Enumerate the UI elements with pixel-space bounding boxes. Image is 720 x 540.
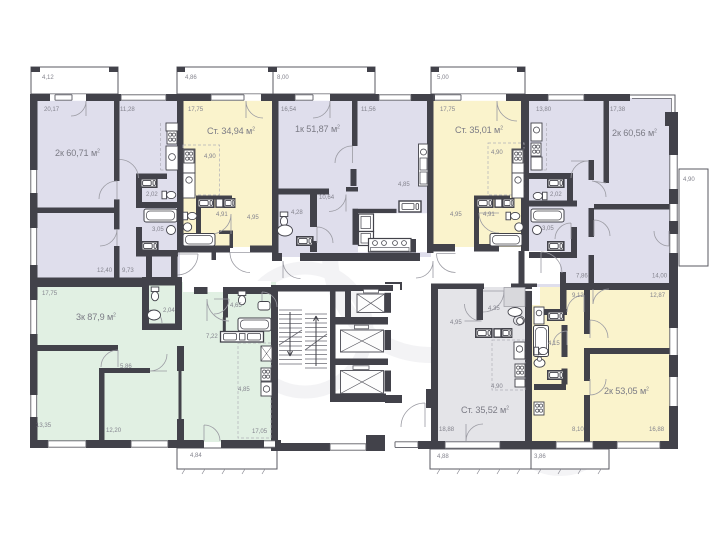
svg-text:Ст. 34,94 м2: Ст. 34,94 м2 [207,126,255,136]
svg-text:4,95: 4,95 [450,212,462,218]
svg-text:16,54: 16,54 [281,107,297,113]
svg-text:4,35: 4,35 [488,306,500,312]
svg-text:9,12: 9,12 [572,293,584,299]
svg-text:4,15: 4,15 [548,341,560,347]
svg-text:2к 53,05 м2: 2к 53,05 м2 [604,386,649,396]
svg-text:4,85: 4,85 [238,387,250,393]
svg-text:3,86: 3,86 [534,454,546,460]
svg-text:16,88: 16,88 [649,427,665,433]
svg-text:9,73: 9,73 [122,268,134,274]
svg-text:13,35: 13,35 [36,423,52,429]
svg-text:17,75: 17,75 [42,291,58,297]
svg-text:8,10: 8,10 [572,427,584,433]
svg-text:7,86: 7,86 [576,274,588,280]
svg-text:12,87: 12,87 [650,293,666,299]
svg-text:13,80: 13,80 [536,107,552,113]
svg-text:4,95: 4,95 [247,215,259,221]
svg-text:4,84: 4,84 [190,453,202,459]
svg-text:2к 60,71 м2: 2к 60,71 м2 [55,148,100,158]
svg-text:11,56: 11,56 [361,107,376,113]
svg-text:4,91: 4,91 [483,212,495,218]
svg-text:4,90: 4,90 [683,177,695,183]
svg-text:4,85: 4,85 [398,182,410,188]
svg-text:18,88: 18,88 [439,427,455,433]
svg-text:3,05: 3,05 [542,226,554,232]
svg-text:2,04: 2,04 [163,308,175,314]
svg-text:14,00: 14,00 [652,274,668,280]
svg-text:4,95: 4,95 [450,320,462,326]
svg-text:4,91: 4,91 [216,212,228,218]
svg-text:10,64: 10,64 [319,195,335,201]
svg-text:1к 51,87 м2: 1к 51,87 м2 [295,124,340,134]
svg-text:4,90: 4,90 [491,150,503,156]
svg-text:12,20: 12,20 [106,428,122,434]
svg-text:4,86: 4,86 [185,75,197,81]
svg-text:17,38: 17,38 [610,107,626,113]
svg-text:3,05: 3,05 [152,227,164,233]
svg-text:17,75: 17,75 [188,107,204,113]
svg-text:17,75: 17,75 [440,107,456,113]
svg-text:5,86: 5,86 [120,364,132,370]
svg-text:Ст. 35,01 м2: Ст. 35,01 м2 [455,125,503,135]
svg-text:20,17: 20,17 [44,107,60,113]
svg-text:7,22: 7,22 [206,334,218,340]
svg-text:17,05: 17,05 [252,429,268,435]
svg-text:4,28: 4,28 [291,210,303,216]
svg-text:4,12: 4,12 [42,75,54,81]
svg-text:11,28: 11,28 [120,107,135,113]
svg-text:4,90: 4,90 [204,154,216,160]
svg-text:2к 60,56 м2: 2к 60,56 м2 [612,128,657,138]
svg-text:3к 87,9 м2: 3к 87,9 м2 [76,312,116,322]
svg-text:2,02: 2,02 [550,192,562,198]
svg-text:Ст. 35,52 м2: Ст. 35,52 м2 [461,405,509,415]
svg-text:5,00: 5,00 [437,75,449,81]
svg-text:8,00: 8,00 [277,75,289,81]
svg-text:4,65: 4,65 [230,303,242,309]
svg-text:4,88: 4,88 [437,454,449,460]
svg-text:12,40: 12,40 [97,268,113,274]
svg-text:4,90: 4,90 [491,384,503,390]
svg-text:2,02: 2,02 [146,192,158,198]
